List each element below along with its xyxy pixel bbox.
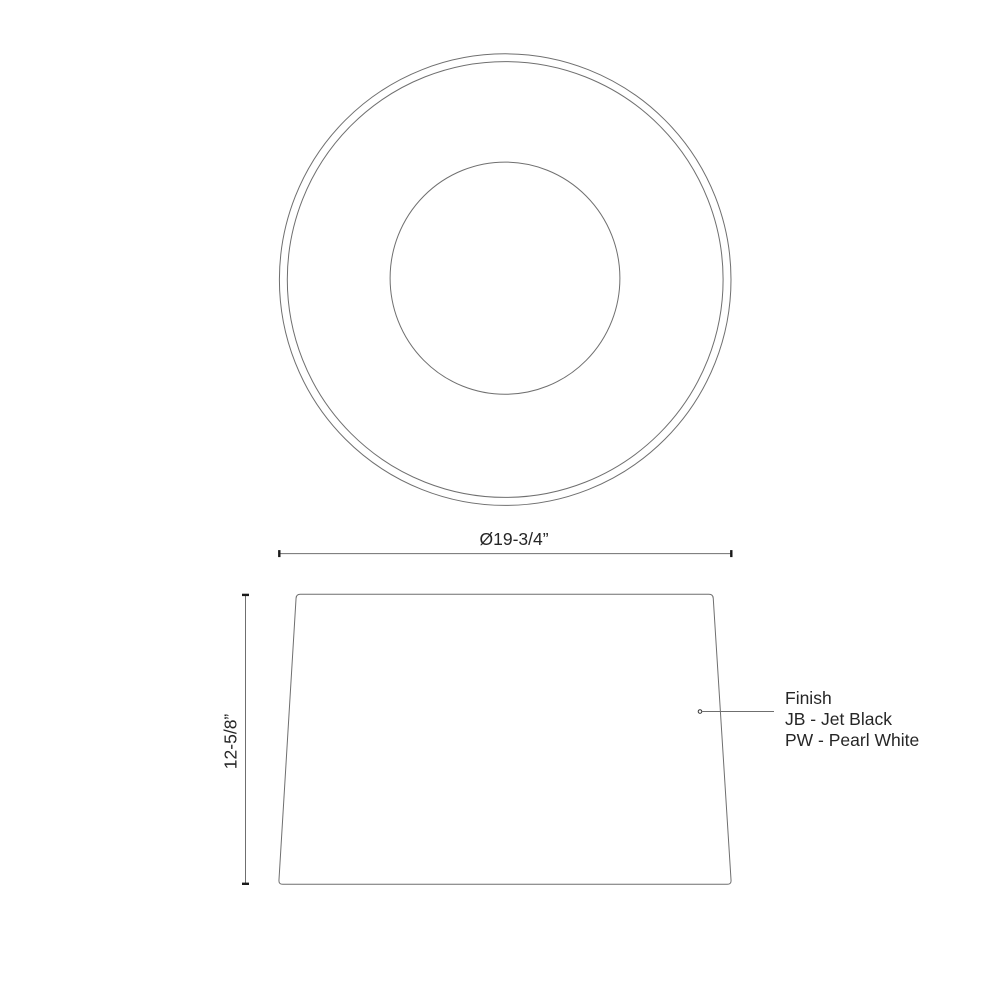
svg-text:JB - Jet Black: JB - Jet Black: [785, 709, 892, 729]
svg-text:PW - Pearl White: PW - Pearl White: [785, 730, 919, 750]
svg-text:Ø19-3/4”: Ø19-3/4”: [480, 529, 549, 549]
svg-text:12-5/8”: 12-5/8”: [221, 714, 241, 770]
svg-text:Finish: Finish: [785, 688, 832, 708]
